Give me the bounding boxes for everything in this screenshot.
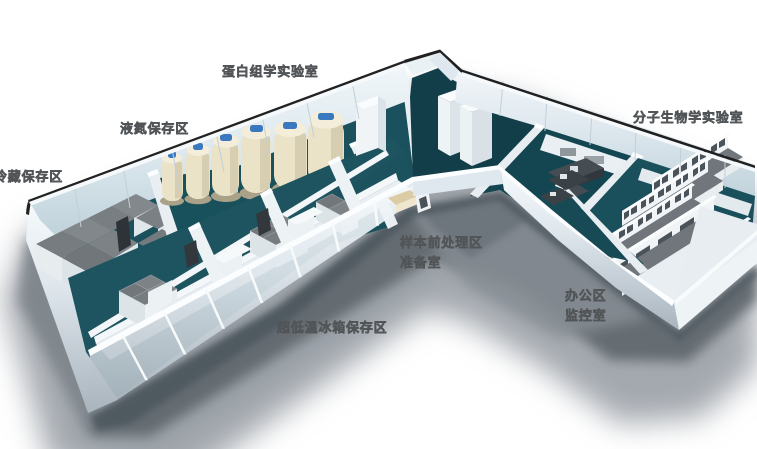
svg-text:超低温冰箱保存区: 超低温冰箱保存区: [277, 320, 387, 335]
svg-text:液氮保存区: 液氮保存区: [120, 121, 189, 136]
svg-text:冷藏保存区: 冷藏保存区: [0, 169, 63, 184]
svg-text:分子生物学实验室: 分子生物学实验室: [633, 110, 743, 125]
svg-text:办公区: 办公区: [565, 288, 606, 303]
svg-text:样本前处理区: 样本前处理区: [400, 235, 483, 250]
svg-text:监控室: 监控室: [565, 308, 606, 323]
svg-text:蛋白组学实验室: 蛋白组学实验室: [222, 64, 319, 79]
svg-text:准备室: 准备室: [400, 255, 441, 270]
